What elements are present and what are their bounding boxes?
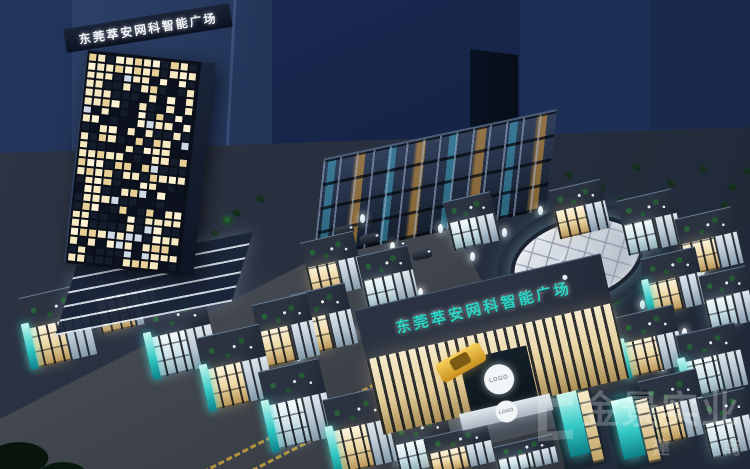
tower-window	[175, 203, 183, 210]
tower-window	[94, 177, 102, 184]
tower-window	[79, 237, 87, 244]
tower-window	[166, 114, 174, 121]
tower-window	[160, 254, 168, 261]
tower-window	[161, 70, 169, 77]
tower-window	[182, 134, 190, 141]
tower-window	[162, 237, 170, 244]
tower-window	[135, 137, 143, 144]
tower-window	[93, 186, 101, 193]
tower-window	[101, 204, 109, 211]
tower-window	[145, 138, 153, 145]
tower-window	[124, 251, 132, 258]
tower-window	[96, 72, 104, 79]
tower-window	[141, 261, 149, 268]
tower-window	[162, 149, 170, 156]
tower-window	[177, 177, 185, 184]
tower-window	[74, 193, 82, 200]
tower-window	[110, 205, 118, 212]
tower-window	[127, 216, 135, 223]
tower-window	[125, 57, 133, 64]
tower-window	[149, 183, 157, 190]
tower-window	[92, 203, 100, 210]
tower-window	[108, 223, 116, 230]
tower-window	[77, 255, 85, 262]
tower-window	[141, 85, 149, 92]
tower-window	[109, 126, 117, 133]
tower-window	[179, 72, 187, 79]
tower-window	[124, 154, 132, 161]
tower-window	[178, 80, 186, 87]
tower-window	[158, 96, 166, 103]
tower-window	[171, 238, 179, 245]
tower-window	[179, 160, 187, 167]
tower-window	[89, 141, 97, 148]
tower-window	[72, 210, 80, 217]
tower-window	[114, 250, 122, 257]
tower-window	[97, 239, 105, 246]
tower-window	[98, 230, 106, 237]
tower-window	[154, 139, 162, 146]
tower-window	[122, 180, 130, 187]
tower-window	[153, 60, 161, 67]
tower-window	[105, 161, 113, 168]
tower-window	[108, 135, 116, 142]
tower-window	[120, 109, 128, 116]
retail-block	[549, 179, 611, 239]
tower-window	[116, 232, 124, 239]
tower-window	[80, 228, 88, 235]
tower-window	[139, 103, 147, 110]
tower-window	[189, 64, 197, 71]
tower-window	[139, 191, 147, 198]
tower-window	[132, 260, 140, 267]
tower-window	[131, 181, 139, 188]
tower-window	[126, 224, 134, 231]
tower-window	[91, 124, 99, 131]
tower-window	[87, 247, 95, 254]
tower-window	[159, 263, 167, 270]
tower-window	[133, 76, 141, 83]
tower-window	[127, 128, 135, 135]
tower-window	[107, 55, 115, 62]
tower-window	[105, 73, 113, 80]
tower-window	[145, 130, 153, 137]
tower-window	[168, 88, 176, 95]
tower-window	[105, 249, 113, 256]
tower-window	[164, 220, 172, 227]
tower-window	[128, 207, 136, 214]
tower-window	[122, 92, 130, 99]
tower-window	[168, 176, 176, 183]
tower-window	[153, 236, 161, 243]
tower-window	[176, 194, 184, 201]
tower-window	[103, 99, 111, 106]
tower-window	[106, 240, 114, 247]
tower-window	[168, 264, 176, 271]
tower-window	[87, 159, 95, 166]
tower-window	[160, 166, 168, 173]
tower-window	[149, 95, 157, 102]
tower-window	[115, 153, 123, 160]
tower-window	[133, 252, 141, 259]
tower-window	[110, 117, 118, 124]
tower-window	[114, 82, 122, 89]
tower-window	[159, 175, 167, 182]
tower-window	[141, 173, 149, 180]
tower-window	[82, 211, 90, 218]
tower-window	[151, 78, 159, 85]
tower-window	[90, 133, 98, 140]
tower-window	[144, 147, 152, 154]
tower-window	[143, 156, 151, 163]
tower-window	[68, 254, 76, 261]
tower-window	[88, 238, 96, 245]
tower-window	[97, 151, 105, 158]
tower-window	[104, 90, 112, 97]
tower-window	[118, 127, 126, 134]
tower-window	[112, 100, 120, 107]
tower-window	[174, 124, 182, 131]
tower-window	[124, 75, 132, 82]
tower-window	[84, 97, 92, 104]
tower-window	[78, 158, 86, 165]
tower-window	[117, 136, 125, 143]
tower-window	[80, 140, 88, 147]
tower-window	[165, 202, 173, 209]
tower-window	[150, 262, 158, 269]
tower-window	[151, 165, 159, 172]
tower-window-grid	[68, 53, 197, 271]
tower-window	[89, 53, 97, 60]
tower-window	[112, 188, 120, 195]
tower-window	[73, 201, 81, 208]
tower-window	[126, 137, 134, 144]
tower-window	[123, 83, 131, 90]
tower-window	[146, 209, 154, 216]
tower-window	[178, 168, 186, 175]
tower-window	[124, 163, 132, 170]
tower-window	[146, 121, 154, 128]
tower-window	[87, 71, 95, 78]
tower-window	[111, 108, 119, 115]
tower-window	[81, 220, 89, 227]
tower-window	[86, 255, 94, 262]
tower-window	[147, 112, 155, 119]
tower-window	[75, 184, 83, 191]
tower-window	[134, 146, 142, 153]
tower-window	[103, 178, 111, 185]
tower-window	[171, 62, 179, 69]
tower-window	[137, 120, 145, 127]
tower-window	[135, 58, 143, 65]
tower-window	[86, 167, 94, 174]
block-glass-side	[464, 440, 495, 467]
tower-window	[120, 197, 128, 204]
tower-window	[96, 160, 104, 167]
watermark-text: 金景实业 建 商	[581, 392, 741, 460]
tower-window	[155, 131, 163, 138]
tower-window	[114, 170, 122, 177]
tower-window	[93, 98, 101, 105]
tower-window	[152, 245, 160, 252]
tower-window	[131, 93, 139, 100]
tower-window	[106, 64, 114, 71]
tower-window	[163, 140, 171, 147]
tower-window	[83, 194, 91, 201]
tower-window	[95, 168, 103, 175]
tower-window	[180, 151, 188, 158]
tower-window	[92, 115, 100, 122]
tower-window	[76, 175, 84, 182]
retail-block	[698, 265, 750, 330]
tower-window	[99, 222, 107, 229]
tower-window	[160, 78, 168, 85]
tower-window	[83, 202, 91, 209]
tower-window	[136, 129, 144, 136]
tower-window	[147, 200, 155, 207]
entrance-logo-sign: LOGO	[481, 362, 517, 398]
tower-window	[188, 73, 196, 80]
tower-window	[145, 226, 153, 233]
tower-window	[134, 155, 142, 162]
tower-window	[100, 125, 108, 132]
tower-window	[86, 80, 94, 87]
tower-window	[172, 229, 180, 236]
tower-window	[163, 228, 171, 235]
tower-window	[144, 59, 152, 66]
tower-window	[107, 143, 115, 150]
tower-window	[166, 106, 174, 113]
tower-window	[157, 193, 165, 200]
tower-window	[107, 231, 115, 238]
tower-window	[173, 221, 181, 228]
tower-window	[151, 253, 159, 260]
tower-window	[134, 67, 142, 74]
tower-window	[137, 208, 145, 215]
tower-window	[148, 104, 156, 111]
tower-window	[115, 65, 123, 72]
tower-window	[138, 199, 146, 206]
tower-window	[83, 114, 91, 121]
tower-window	[88, 150, 96, 157]
tower-window	[78, 246, 86, 253]
tower-window	[103, 187, 111, 194]
tower-window	[138, 111, 146, 118]
tower-window	[176, 106, 184, 113]
tower-window	[180, 63, 188, 70]
tower-window	[95, 256, 103, 263]
tower-window	[155, 122, 163, 129]
tower-window	[176, 186, 184, 193]
tower-window	[116, 56, 124, 63]
tower-window	[104, 257, 112, 264]
tower-window	[183, 125, 191, 132]
tower-window	[170, 159, 178, 166]
tower-window	[177, 89, 185, 96]
tower-window	[121, 189, 129, 196]
tower-window	[85, 88, 93, 95]
tower-window	[173, 133, 181, 140]
tower-window	[169, 255, 177, 262]
tower-window	[91, 212, 99, 219]
tower-window	[85, 176, 93, 183]
tower-window	[166, 194, 174, 201]
tower-window	[142, 165, 150, 172]
tower-window	[102, 196, 110, 203]
tower-window	[169, 167, 177, 174]
tower-window	[113, 258, 121, 265]
tower-window	[144, 235, 152, 242]
retail-block	[616, 188, 683, 255]
tower-window	[130, 190, 138, 197]
tower-window	[100, 213, 108, 220]
tower-window	[93, 195, 101, 202]
tower-window	[72, 219, 80, 226]
tower-window	[142, 253, 150, 260]
tower-window	[185, 107, 193, 114]
tower-window	[94, 89, 102, 96]
tower-window	[84, 185, 92, 192]
tower-window	[119, 118, 127, 125]
tower-window	[82, 123, 90, 130]
tower-window	[98, 54, 106, 61]
tower-window	[104, 81, 112, 88]
tower-window	[187, 81, 195, 88]
tower-window	[158, 184, 166, 191]
tower-window	[165, 123, 173, 130]
tower-window	[95, 80, 103, 87]
tower-window	[143, 244, 151, 251]
tower-window	[104, 169, 112, 176]
tower-window	[106, 152, 114, 159]
tower-window	[125, 233, 133, 240]
tower-window	[159, 87, 167, 94]
tower-window	[181, 142, 189, 149]
tower-window	[111, 196, 119, 203]
tower-window	[140, 182, 148, 189]
tower-window	[148, 192, 156, 199]
night-aerial-rendering: 东莞萃安网科智能广场 东莞萃安网科智能广场 LOGO LOGO	[0, 0, 750, 469]
tower-window	[109, 214, 117, 221]
tower-window	[152, 69, 160, 76]
tower-window	[161, 158, 169, 165]
watermark-brand: 金景实业	[581, 392, 741, 430]
tower-window	[132, 172, 140, 179]
tower-window	[157, 105, 165, 112]
tower-window	[93, 107, 101, 114]
tower-window	[165, 211, 173, 218]
tower-window	[161, 246, 169, 253]
tower-window	[134, 243, 142, 250]
tower-window	[145, 218, 153, 225]
tower-window	[150, 174, 158, 181]
watermark-logo	[538, 396, 573, 441]
foreground-foliage	[0, 416, 96, 469]
tower-window	[186, 90, 194, 97]
tower-window	[172, 141, 180, 148]
tower-window	[140, 94, 148, 101]
tower-window	[133, 164, 141, 171]
tower-window	[186, 99, 194, 106]
tower-window	[142, 77, 150, 84]
tower-window	[101, 116, 109, 123]
tower-window	[143, 68, 151, 75]
tower-window	[70, 236, 78, 243]
tower-window	[123, 259, 131, 266]
tower-window	[135, 225, 143, 232]
tower-window	[98, 142, 106, 149]
tower-window	[123, 171, 131, 178]
retail-block	[443, 191, 501, 251]
tower-window	[162, 61, 170, 68]
tower-window	[130, 102, 138, 109]
tower-window	[90, 221, 98, 228]
tower-window	[136, 217, 144, 224]
tower-window	[156, 201, 164, 208]
tower-window	[114, 74, 122, 81]
tower-window	[124, 242, 132, 249]
tower-window	[115, 241, 123, 248]
tower-window	[156, 113, 164, 120]
tower-window	[167, 97, 175, 104]
office-tower	[64, 50, 216, 276]
tower-window	[184, 116, 192, 123]
tower-window	[132, 84, 140, 91]
tower-window	[155, 219, 163, 226]
tower-window	[71, 227, 79, 234]
tower-window	[153, 148, 161, 155]
tower-window	[128, 119, 136, 126]
tower-window	[89, 229, 97, 236]
tower-window	[117, 224, 125, 231]
tower-window	[154, 227, 162, 234]
watermark: 金景实业 建 商	[538, 392, 741, 460]
tower-window	[176, 98, 184, 105]
tower-window	[114, 162, 122, 169]
tower-window	[77, 167, 85, 174]
tower-window	[170, 71, 178, 78]
tower-window	[155, 210, 163, 217]
tower-window	[167, 185, 175, 192]
tower-window	[81, 132, 89, 139]
tower-window	[169, 79, 177, 86]
tower-window	[150, 86, 158, 93]
tower-window	[69, 245, 77, 252]
tower-window	[116, 144, 124, 151]
tower-window	[83, 106, 91, 113]
tower-window	[79, 149, 87, 156]
tower-window	[119, 206, 127, 213]
tower-window	[124, 66, 132, 73]
tower-window	[171, 150, 179, 157]
tower-window	[113, 91, 121, 98]
tower-window	[134, 234, 142, 241]
tower-window	[170, 247, 178, 254]
tower-window	[113, 179, 121, 186]
tower-window	[88, 62, 96, 69]
tower-window	[152, 157, 160, 164]
tower-window	[129, 198, 137, 205]
watermark-tagline: 建 商	[581, 434, 750, 460]
tower-window	[99, 134, 107, 141]
tower-window	[97, 63, 105, 70]
tower-window	[174, 212, 182, 219]
tower-window	[164, 132, 172, 139]
tower-window	[102, 108, 110, 115]
tower-window	[129, 110, 137, 117]
tower-window	[125, 145, 133, 152]
tower-window	[175, 115, 183, 122]
